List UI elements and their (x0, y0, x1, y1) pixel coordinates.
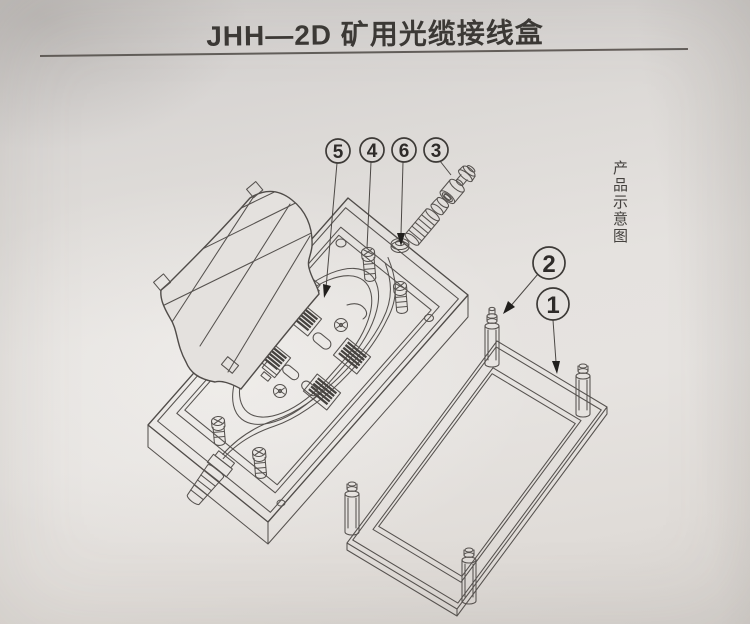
screw-head (335, 319, 348, 332)
rim-hole (336, 239, 346, 247)
tray-cover (150, 170, 340, 389)
base-plate (347, 341, 607, 616)
base-plate-outer-inner-line (353, 347, 602, 603)
callout-4-number: 4 (367, 141, 378, 162)
fixing-screw (361, 247, 377, 282)
callout-1: 1 (537, 288, 569, 320)
callout-4: 4 (360, 138, 384, 162)
leader-line-4 (367, 162, 371, 248)
callout-6: 6 (392, 138, 416, 162)
callout-3: 3 (424, 138, 448, 162)
callout-5-number: 5 (333, 142, 344, 163)
arrowhead-5 (323, 284, 331, 298)
splice-holder-comb (333, 338, 370, 374)
callout-3-number: 3 (431, 141, 442, 162)
leader-line-5 (326, 163, 337, 288)
fiber-guide (347, 304, 367, 319)
callout-2-number: 2 (542, 251, 555, 278)
standoff-posts (345, 307, 590, 604)
standoff-post-with-screw (485, 307, 499, 367)
splice-holder-comb (303, 374, 340, 410)
callout-2: 2 (533, 247, 565, 279)
tray-cover-outline (161, 191, 319, 389)
base-plate-opening-outer (373, 368, 581, 582)
tray-post (311, 331, 333, 351)
leader-line-6 (401, 162, 403, 234)
fixing-screw (252, 447, 268, 479)
leader-line-3 (440, 161, 451, 175)
screw-head (274, 385, 287, 398)
leader-line-2 (509, 274, 538, 308)
standoff-post (576, 364, 590, 417)
standoff-post (345, 482, 359, 535)
callout-6-number: 6 (399, 141, 410, 162)
arrowhead-1 (552, 361, 560, 374)
tray-post (281, 363, 301, 381)
exploded-diagram: 5 4 6 3 2 1 (0, 0, 750, 624)
base-plate-opening-inner (379, 374, 576, 577)
cable-gland-exploded (403, 162, 479, 248)
callout-1-number: 1 (546, 292, 559, 319)
callout-5: 5 (326, 139, 350, 163)
leader-line-1 (553, 320, 556, 362)
